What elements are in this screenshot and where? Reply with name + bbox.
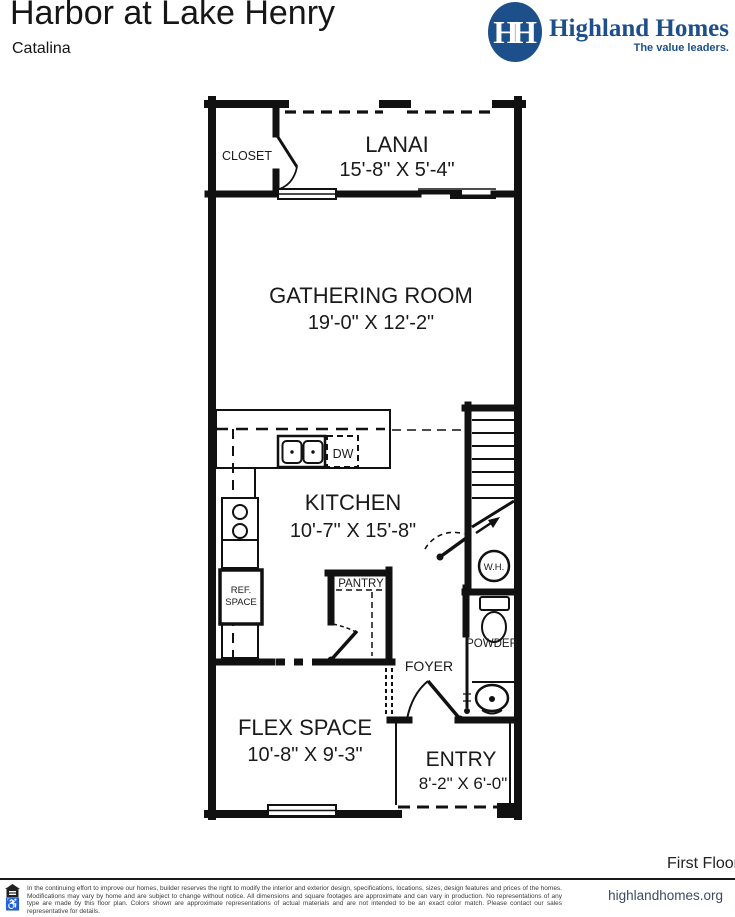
room-label-pantry: PANTRY — [338, 578, 384, 590]
kitchen-sink — [278, 436, 325, 467]
water-heater-closet-door — [425, 532, 469, 560]
room-dims-gathering: 19'-0" X 12'-2" — [308, 312, 434, 334]
room-label-flex: FLEX SPACE — [238, 715, 372, 740]
label-ref-space-line2: SPACE — [225, 597, 257, 608]
flex-window — [268, 805, 336, 816]
pedestal-sink — [476, 685, 508, 714]
sliding-door-left — [278, 189, 336, 199]
room-label-closet: CLOSET — [222, 149, 272, 163]
room-dims-lanai: 15'-8" X 5'-4" — [339, 159, 454, 181]
accessibility-icon: ♿ — [5, 898, 23, 911]
room-dims-kitchen: 10'-7" X 15'-8" — [290, 520, 416, 542]
wall-corner-block — [497, 803, 522, 818]
room-label-entry: ENTRY — [426, 748, 497, 771]
pantry-door — [328, 624, 359, 664]
base-cabinet — [222, 624, 258, 658]
stairs — [472, 420, 514, 533]
toilet — [480, 597, 509, 642]
equal-housing-icon — [5, 884, 20, 897]
foyer-cased-opening — [386, 668, 392, 716]
floorplan-page: Harbor at Lake Henry Catalina HH Highlan… — [0, 0, 735, 917]
label-dishwasher: DW — [333, 447, 354, 461]
footer-divider — [0, 878, 735, 880]
range — [222, 498, 258, 568]
room-dims-flex: 10'-8" X 9'-3" — [247, 744, 362, 766]
footer-icons: ♿ — [5, 884, 23, 911]
room-label-lanai: LANAI — [365, 132, 429, 157]
label-ref-space-line1: REF. — [231, 585, 252, 596]
label-water-heater: W.H. — [484, 562, 505, 573]
footer-disclaimer: In the continuing effort to improve our … — [27, 885, 562, 915]
room-dims-entry: 8'-2" X 6'-0" — [419, 774, 508, 793]
entry-door — [407, 681, 464, 723]
footer-website: highlandhomes.org — [608, 888, 723, 903]
floorplan-drawing: CLOSET LANAI 15'-8" X 5'-4" GATHERING RO… — [0, 0, 735, 917]
room-label-powder: POWDER — [466, 638, 518, 650]
floor-label: First Floor — [667, 855, 735, 873]
room-label-foyer: FOYER — [405, 658, 453, 674]
room-label-kitchen: KITCHEN — [305, 490, 402, 515]
sliding-door-right — [418, 189, 496, 199]
floorplan-svg: CLOSET LANAI 15'-8" X 5'-4" GATHERING RO… — [0, 0, 735, 917]
room-label-gathering: GATHERING ROOM — [269, 283, 473, 308]
